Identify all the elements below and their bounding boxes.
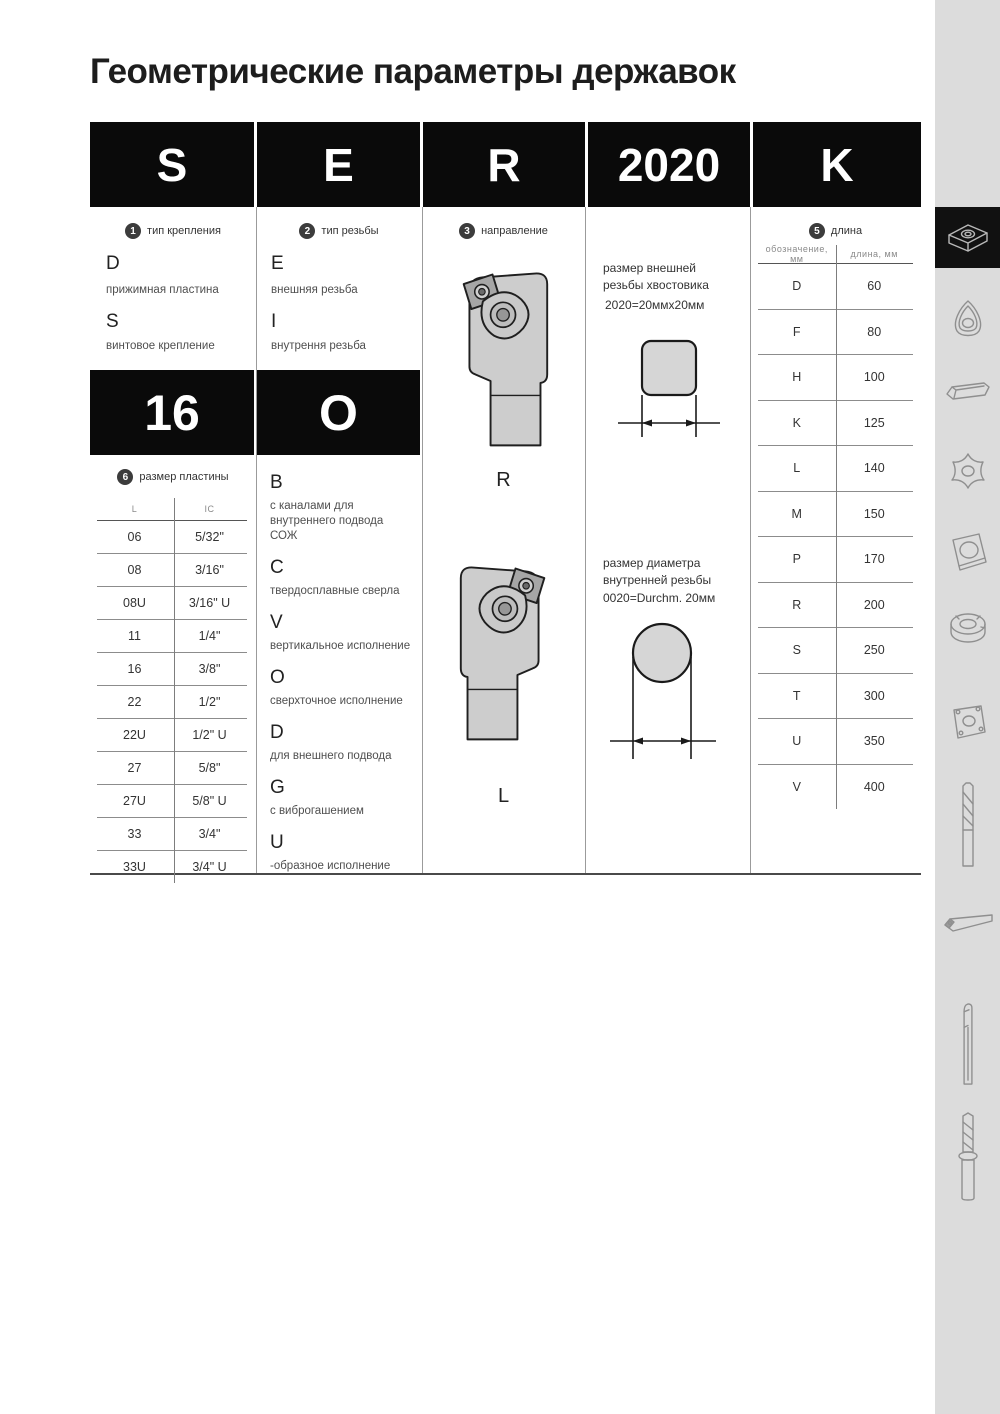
round-shank-diagram xyxy=(598,617,738,772)
direction-label-l: L xyxy=(422,785,585,808)
size-code-cell: 16 xyxy=(90,370,254,455)
table-row: 22U1/2" U xyxy=(97,719,247,752)
design-option: Cтвердосплавные сверла xyxy=(270,557,412,599)
badge-5: 5 xyxy=(809,223,825,239)
sidebar-icon-square-milling-insert[interactable] xyxy=(935,700,1000,746)
code-cell-e: E xyxy=(257,122,420,207)
shank-external-size: 2020=20ммх20мм xyxy=(605,297,745,314)
badge-3: 3 xyxy=(459,223,475,239)
insert-size-table: L IC 065/32"083/16"08U3/16" U111/4"163/8… xyxy=(97,498,247,883)
table-row: 275/8" xyxy=(97,752,247,785)
mounting-code-d: D xyxy=(106,253,120,275)
code-cell-k: K xyxy=(753,122,921,207)
table-row: 08U3/16" U xyxy=(97,587,247,620)
length-table: обозначение, мм длина, мм D60F80H100K125… xyxy=(758,245,913,809)
toolholder-right-image xyxy=(456,265,552,456)
insert-size-rows: 065/32"083/16"08U3/16" U111/4"163/8"221/… xyxy=(97,521,247,883)
table-row: 111/4" xyxy=(97,620,247,653)
badge-label: тип крепления xyxy=(147,225,221,237)
mounting-code-s: S xyxy=(106,311,119,333)
design-option: Gс виброгашением xyxy=(270,777,412,819)
table-row: 065/32" xyxy=(97,521,247,554)
code-cell-2020: 2020 xyxy=(588,122,750,207)
thread-desc-e: внешняя резьба xyxy=(271,283,358,298)
badge-label: тип резьбы xyxy=(321,225,378,237)
direction-label-r: R xyxy=(422,469,585,492)
mounting-desc-d: прижимная пластина xyxy=(106,283,219,298)
direction-header: 3 направление xyxy=(422,223,585,239)
column-thread-type: 2 тип резьбы E внешняя резьба I внутренн… xyxy=(256,207,422,873)
shank-internal-size: 0020=Durchm. 20мм xyxy=(603,590,748,607)
table-divider xyxy=(836,245,837,809)
shank-external-note: размер внешней резьбы хвостовика xyxy=(603,260,735,293)
column-length: 5 длина обозначение, мм длина, мм D60F80… xyxy=(750,207,921,873)
sidebar-icon-end-mill[interactable] xyxy=(935,782,1000,870)
sidebar-icon-grooving-insert[interactable] xyxy=(935,376,1000,406)
thread-code-e: E xyxy=(271,253,284,275)
table-row: 163/8" xyxy=(97,653,247,686)
sidebar-icon-square-insert-round-hole[interactable] xyxy=(935,528,1000,574)
column-shank-size: размер внешней резьбы хвостовика 2020=20… xyxy=(585,207,750,873)
sidebar xyxy=(935,0,1000,1414)
sidebar-icon-boring-bar[interactable] xyxy=(935,1002,1000,1086)
sidebar-icon-threading-insert[interactable] xyxy=(935,448,1000,492)
option-code-cell: O xyxy=(257,370,420,455)
badge-label: направление xyxy=(481,225,548,237)
parameters-table: 1 тип крепления D прижимная пластина S в… xyxy=(90,207,921,875)
table-row: 083/16" xyxy=(97,554,247,587)
page-title: Геометрические параметры державок xyxy=(90,52,736,92)
shank-internal-note: размер диаметра внутренней резьбы xyxy=(603,555,735,588)
length-header: 5 длина xyxy=(750,223,921,239)
thread-desc-i: внутрення резьба xyxy=(271,339,366,354)
column-direction: 3 направление R xyxy=(422,207,585,873)
design-options-list: Bс каналами для внутреннего подвода СОЖC… xyxy=(270,472,412,886)
badge-label: размер пластины xyxy=(139,471,228,483)
badge-1: 1 xyxy=(125,223,141,239)
badge-6: 6 xyxy=(117,469,133,485)
toolholder-left-image xyxy=(456,559,552,750)
table-row: 221/2" xyxy=(97,686,247,719)
thread-code-i: I xyxy=(271,311,276,333)
table-divider xyxy=(174,498,175,883)
sidebar-icon-turning-toolholder[interactable] xyxy=(935,910,1000,936)
table-header: L IC xyxy=(97,498,247,521)
sidebar-icon-square-turning-insert[interactable] xyxy=(935,207,1000,268)
insert-size-header: 6 размер пластины xyxy=(90,469,256,485)
column-mounting-type: 1 тип крепления D прижимная пластина S в… xyxy=(90,207,256,873)
sidebar-icon-trigon-insert[interactable] xyxy=(935,296,1000,340)
code-cell-s: S xyxy=(90,122,254,207)
design-option: Oсверхточное исполнение xyxy=(270,667,412,709)
table-row: 333/4" xyxy=(97,818,247,851)
sidebar-icon-drill[interactable] xyxy=(935,1112,1000,1204)
mounting-type-header: 1 тип крепления xyxy=(90,223,256,239)
design-option: Bс каналами для внутреннего подвода СОЖ xyxy=(270,472,412,544)
design-option: Vвертикальное исполнение xyxy=(270,612,412,654)
badge-label: длина xyxy=(831,225,862,237)
sidebar-icon-round-milling-cutter[interactable] xyxy=(935,608,1000,648)
thread-type-header: 2 тип резьбы xyxy=(256,223,422,239)
table-row: 33U3/4" U xyxy=(97,851,247,883)
square-shank-diagram xyxy=(598,337,738,447)
table-row: 27U5/8" U xyxy=(97,785,247,818)
code-cell-r: R xyxy=(423,122,585,207)
design-option: Dдля внешнего подвода xyxy=(270,722,412,764)
mounting-desc-s: винтовое крепление xyxy=(106,339,215,354)
design-option: U-образное исполнение xyxy=(270,832,412,874)
badge-2: 2 xyxy=(299,223,315,239)
